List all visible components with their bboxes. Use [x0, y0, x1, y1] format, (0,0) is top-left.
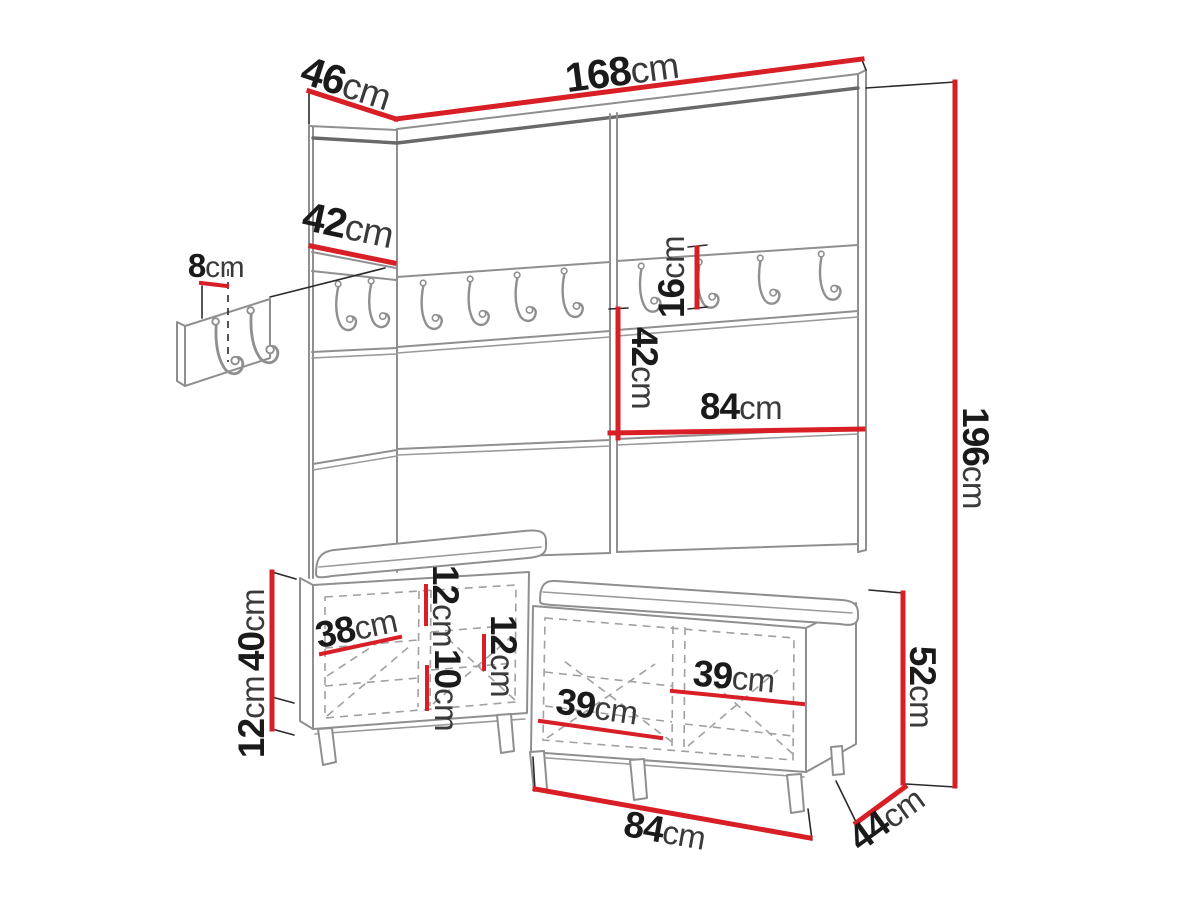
svg-text:44cm: 44cm	[841, 778, 932, 859]
wall-panel-unit	[309, 70, 866, 578]
bench-leg	[497, 714, 514, 753]
bench-leg	[630, 759, 647, 800]
svg-text:16cm: 16cm	[651, 236, 692, 318]
dim-inner-mid: 12cm	[483, 615, 524, 697]
dim-bench-width: 84cm	[533, 757, 812, 858]
bench-leg	[318, 728, 336, 765]
svg-text:40cm: 40cm	[231, 589, 272, 671]
svg-text:46cm: 46cm	[295, 47, 397, 119]
dim-inner-top: 12cm	[425, 565, 466, 647]
svg-text:12cm: 12cm	[483, 615, 524, 697]
furniture-dimension-diagram: 46cm 168cm 42cm 16cm 42cm 84cm	[0, 0, 1200, 900]
dim-rail-height: 16cm	[651, 236, 707, 318]
svg-text:52cm: 52cm	[902, 646, 943, 728]
dim-bench-depth: 44cm	[836, 778, 932, 859]
svg-text:12cm: 12cm	[425, 565, 466, 647]
diagram-canvas: 46cm 168cm 42cm 16cm 42cm 84cm	[0, 0, 1200, 900]
svg-text:84cm: 84cm	[621, 803, 709, 858]
svg-text:84cm: 84cm	[700, 386, 782, 427]
dim-hook-detail: 8cm	[188, 247, 244, 286]
dim-top-depth: 46cm	[295, 47, 397, 124]
bench-leg	[831, 746, 844, 775]
svg-text:42cm: 42cm	[624, 327, 665, 409]
svg-text:10cm: 10cm	[427, 649, 468, 731]
svg-text:12cm: 12cm	[231, 676, 272, 758]
dim-inner-gap: 10cm	[427, 649, 468, 731]
svg-text:196cm: 196cm	[955, 407, 996, 509]
dim-bench-total-height: 52cm	[869, 590, 943, 783]
dim-leg-height: 12cm	[231, 676, 272, 758]
bench-leg	[787, 774, 804, 813]
svg-text:168cm: 168cm	[562, 41, 681, 101]
svg-text:8cm: 8cm	[188, 247, 244, 284]
dim-bench-box-height: 40cm 12cm	[231, 572, 296, 758]
